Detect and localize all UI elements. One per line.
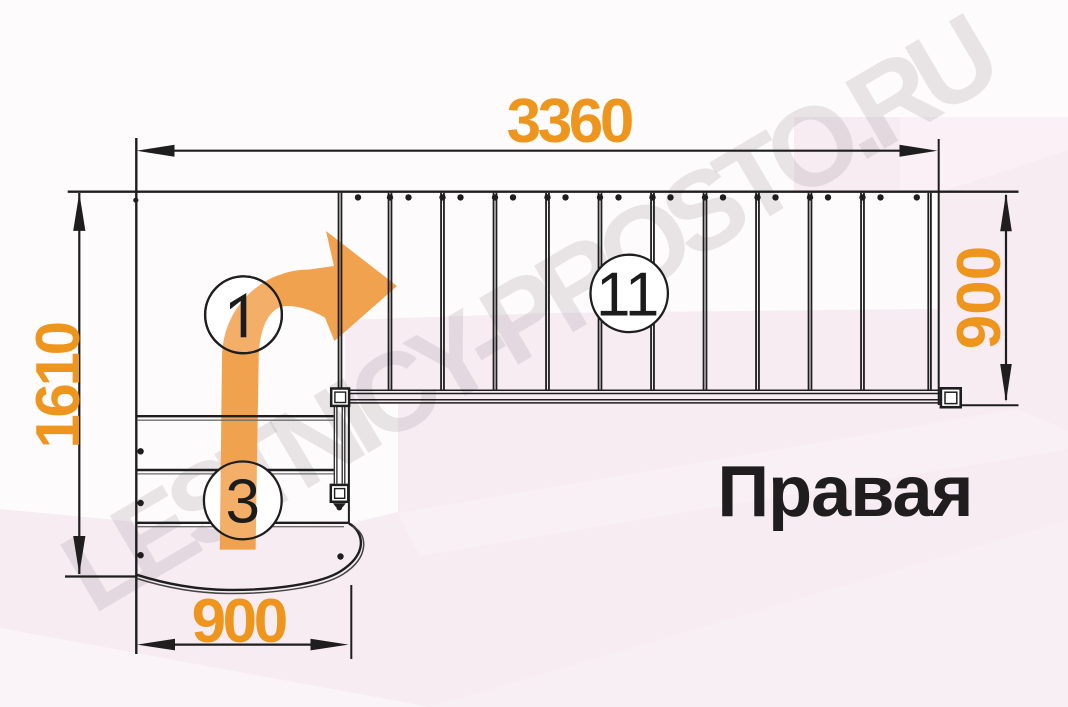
svg-text:1610: 1610: [24, 323, 93, 448]
svg-text:3: 3: [226, 468, 260, 537]
svg-text:Правая: Правая: [717, 452, 972, 532]
svg-text:900: 900: [192, 587, 286, 656]
svg-text:3360: 3360: [507, 87, 632, 156]
svg-text:11: 11: [596, 261, 658, 330]
svg-text:900: 900: [945, 246, 1014, 349]
